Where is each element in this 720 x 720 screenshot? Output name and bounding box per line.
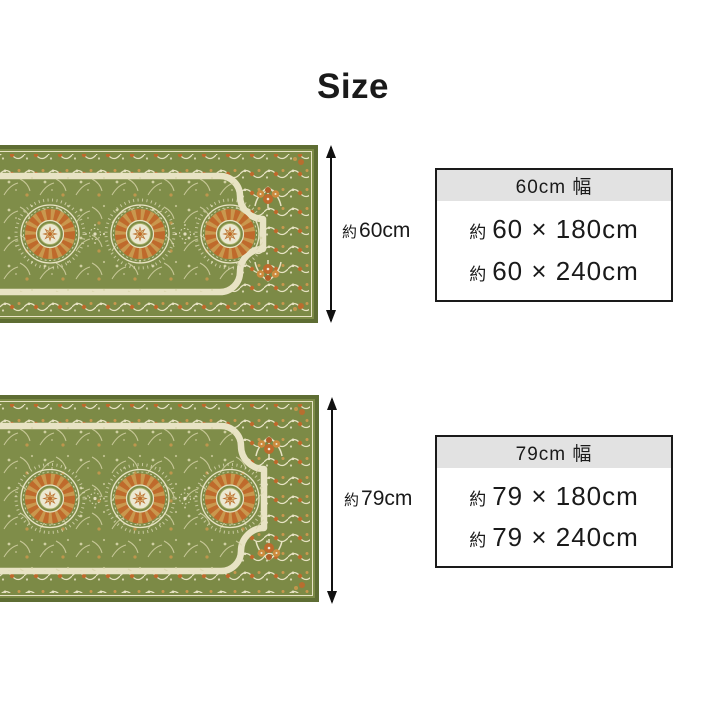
size-value: 60 × 240cm: [492, 256, 639, 287]
size-value: 60 × 180cm: [492, 214, 639, 245]
height-label-79: 約 79cm: [344, 487, 412, 511]
approx-prefix: 約: [469, 485, 486, 510]
size-value: 79 × 180cm: [492, 481, 639, 512]
height-label-60: 約 60cm: [342, 219, 410, 243]
size-box-79: 79cm 幅 約 79 × 180cm 約 79 × 240cm: [435, 435, 673, 568]
size-value: 79 × 240cm: [492, 522, 639, 553]
size-box-79-header: 79cm 幅: [437, 437, 671, 468]
height-value: 60cm: [359, 219, 410, 243]
rug-image-79cm: [0, 395, 319, 602]
rug-image-60cm: [0, 145, 318, 323]
size-box-60-header: 60cm 幅: [437, 170, 671, 201]
page-title: Size: [0, 67, 706, 107]
height-value: 79cm: [361, 487, 412, 511]
size-box-60-body: 約 60 × 180cm 約 60 × 240cm: [437, 201, 671, 300]
approx-prefix: 約: [342, 221, 357, 242]
approx-prefix: 約: [344, 489, 359, 510]
size-row: 約 79 × 240cm: [469, 522, 639, 553]
approx-prefix: 約: [469, 218, 486, 243]
size-row: 約 79 × 180cm: [469, 481, 639, 512]
height-arrow-60-icon: [330, 147, 332, 321]
size-box-79-body: 約 79 × 180cm 約 79 × 240cm: [437, 468, 671, 566]
approx-prefix: 約: [469, 526, 486, 551]
height-arrow-79-icon: [331, 399, 333, 602]
size-infographic: Size 約 60cm 60cm 幅 約 60 × 180cm 約 60 × 2…: [0, 0, 720, 720]
size-row: 約 60 × 240cm: [469, 256, 639, 287]
size-row: 約 60 × 180cm: [469, 214, 639, 245]
approx-prefix: 約: [469, 260, 486, 285]
size-box-60: 60cm 幅 約 60 × 180cm 約 60 × 240cm: [435, 168, 673, 302]
